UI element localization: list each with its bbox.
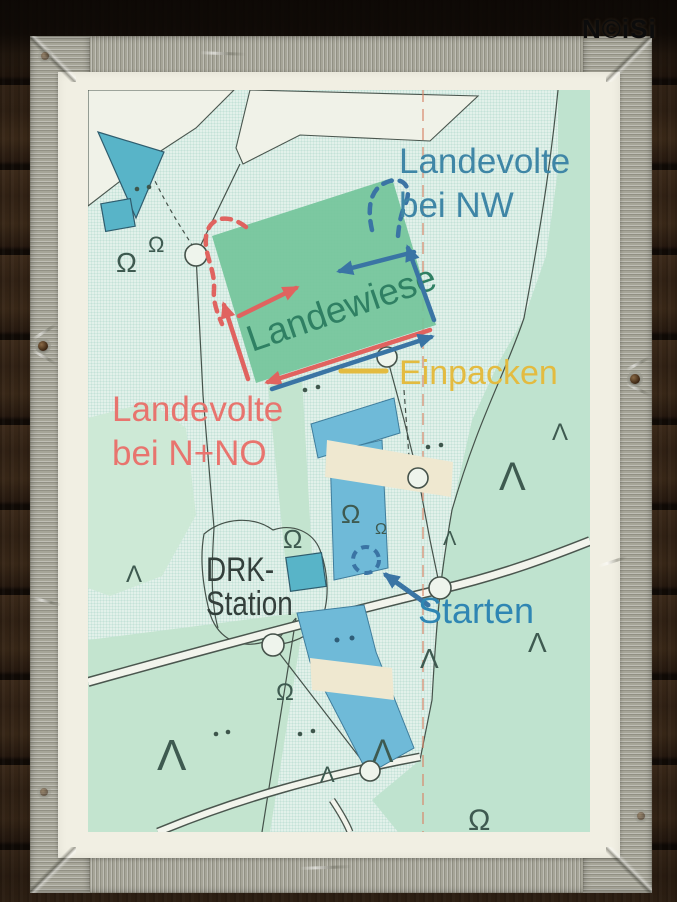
lambda-symbol: Λ	[528, 627, 547, 658]
annotation-einpacken: Einpacken	[341, 354, 558, 392]
starten-label: Starten	[418, 590, 534, 631]
tape-corner-fold	[30, 847, 76, 893]
annotation-landevolte-nw: Landevolte bei NW	[399, 142, 570, 225]
screw	[41, 52, 49, 60]
omega-symbol: Ω	[341, 499, 360, 529]
lambda-symbol: Λ	[157, 731, 187, 780]
omega-symbol: Ω	[375, 521, 387, 538]
omega-symbol: Ω	[148, 232, 164, 257]
drk-station-line2: Station	[206, 584, 293, 622]
map-graphic: Ω Ω Ω Ω Ω Ω Ω Λ Λ Λ Λ Λ Λ Λ Λ Λ DRK- Sta…	[88, 90, 590, 832]
omega-symbol: Ω	[276, 679, 294, 706]
omega-symbol: Ω	[116, 247, 137, 278]
map: Ω Ω Ω Ω Ω Ω Ω Λ Λ Λ Λ Λ Λ Λ Λ Λ DRK- Sta…	[88, 90, 590, 832]
screw	[38, 341, 48, 351]
omega-symbol: Ω	[468, 804, 490, 832]
tape-corner-fold	[606, 847, 652, 893]
building-square	[101, 199, 135, 232]
landevolte-nno-line2: bei N+NO	[112, 434, 267, 473]
landevolte-nw-line1: Landevolte	[399, 142, 570, 181]
watermark: N©iSi	[582, 14, 657, 45]
screw	[40, 788, 48, 796]
lambda-symbol: Λ	[126, 561, 142, 588]
lambda-symbol: Λ	[552, 419, 568, 446]
photo-taped-map-on-wood: Ω Ω Ω Ω Ω Ω Ω Λ Λ Λ Λ Λ Λ Λ Λ Λ DRK- Sta…	[0, 0, 677, 902]
lambda-symbol: Λ	[420, 643, 439, 674]
lambda-symbol: Λ	[443, 528, 457, 550]
landevolte-nno-line1: Landevolte	[112, 390, 283, 429]
einpacken-label: Einpacken	[399, 354, 558, 392]
omega-symbol: Ω	[283, 524, 302, 554]
screw	[637, 812, 645, 820]
lambda-symbol: Λ	[499, 455, 526, 499]
landevolte-nw-line2: bei NW	[399, 186, 514, 225]
drk-station-label: DRK- Station	[206, 550, 293, 622]
tape-corner-fold	[30, 36, 76, 82]
screw	[630, 374, 640, 384]
drk-station-line1: DRK-	[206, 550, 274, 588]
lambda-symbol: Λ	[320, 762, 335, 787]
lambda-symbol: Λ	[372, 733, 394, 769]
